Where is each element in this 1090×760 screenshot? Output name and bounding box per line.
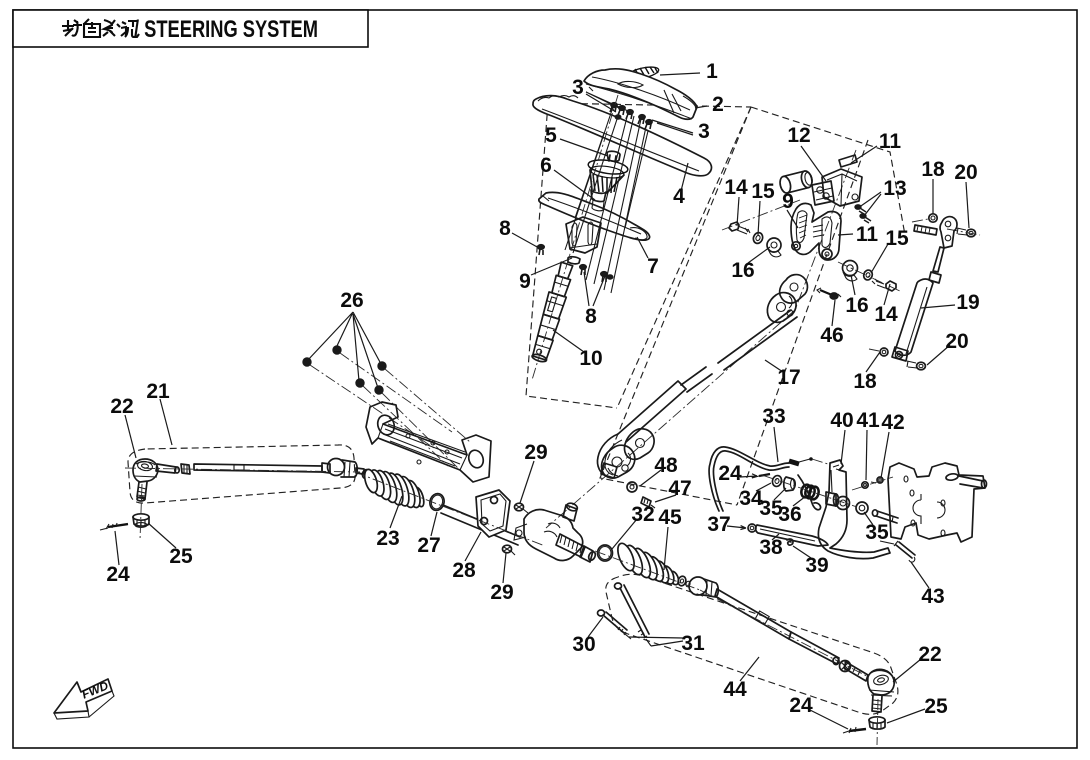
svg-text:14: 14: [874, 303, 898, 326]
svg-text:22: 22: [918, 643, 941, 666]
svg-text:3: 3: [698, 120, 710, 143]
svg-text:11: 11: [856, 223, 879, 246]
svg-text:18: 18: [921, 158, 945, 181]
svg-text:41: 41: [856, 409, 880, 432]
svg-text:10: 10: [579, 347, 602, 370]
svg-text:18: 18: [853, 370, 877, 393]
svg-text:21: 21: [146, 380, 170, 403]
svg-text:31: 31: [681, 632, 705, 655]
svg-text:24: 24: [789, 694, 813, 717]
svg-text:20: 20: [954, 161, 977, 184]
svg-text:37: 37: [707, 513, 730, 536]
svg-text:32: 32: [631, 503, 654, 526]
svg-text:33: 33: [762, 405, 785, 428]
svg-text:28: 28: [452, 559, 476, 582]
svg-text:46: 46: [820, 324, 843, 347]
svg-text:35: 35: [865, 521, 889, 544]
svg-text:9: 9: [519, 270, 531, 293]
svg-text:27: 27: [417, 534, 440, 557]
svg-text:22: 22: [110, 395, 133, 418]
svg-text:3: 3: [572, 76, 584, 99]
svg-text:16: 16: [731, 259, 754, 282]
svg-text:29: 29: [524, 441, 547, 464]
svg-text:19: 19: [956, 291, 979, 314]
svg-text:47: 47: [668, 477, 691, 500]
svg-text:12: 12: [787, 124, 810, 147]
svg-text:11: 11: [879, 130, 902, 153]
svg-text:8: 8: [585, 305, 597, 328]
svg-text:24: 24: [718, 462, 742, 485]
svg-text:14: 14: [724, 176, 748, 199]
svg-text:36: 36: [778, 503, 801, 526]
svg-text:44: 44: [723, 678, 747, 701]
svg-text:2: 2: [712, 93, 724, 116]
svg-text:26: 26: [340, 289, 363, 312]
svg-text:40: 40: [830, 409, 853, 432]
svg-text:20: 20: [945, 330, 968, 353]
svg-text:25: 25: [924, 695, 948, 718]
svg-text:9: 9: [782, 190, 794, 213]
svg-text:24: 24: [106, 563, 130, 586]
svg-text:8: 8: [499, 217, 511, 240]
svg-text:39: 39: [805, 554, 828, 577]
svg-text:15: 15: [885, 227, 909, 250]
svg-text:/ STEERING SYSTEM: / STEERING SYSTEM: [134, 16, 318, 43]
svg-text:25: 25: [169, 545, 193, 568]
svg-text:30: 30: [572, 633, 595, 656]
svg-text:5: 5: [545, 124, 557, 147]
svg-text:15: 15: [751, 180, 775, 203]
svg-text:17: 17: [777, 366, 800, 389]
svg-text:4: 4: [673, 185, 685, 208]
svg-text:7: 7: [647, 255, 659, 278]
svg-text:29: 29: [490, 581, 513, 604]
svg-text:6: 6: [540, 154, 552, 177]
svg-text:13: 13: [883, 177, 906, 200]
svg-text:38: 38: [759, 536, 783, 559]
svg-text:1: 1: [706, 60, 718, 83]
svg-text:42: 42: [881, 411, 904, 434]
svg-text:43: 43: [921, 585, 944, 608]
svg-text:45: 45: [658, 506, 682, 529]
svg-text:48: 48: [654, 454, 678, 477]
svg-text:23: 23: [376, 527, 399, 550]
svg-text:16: 16: [845, 294, 868, 317]
